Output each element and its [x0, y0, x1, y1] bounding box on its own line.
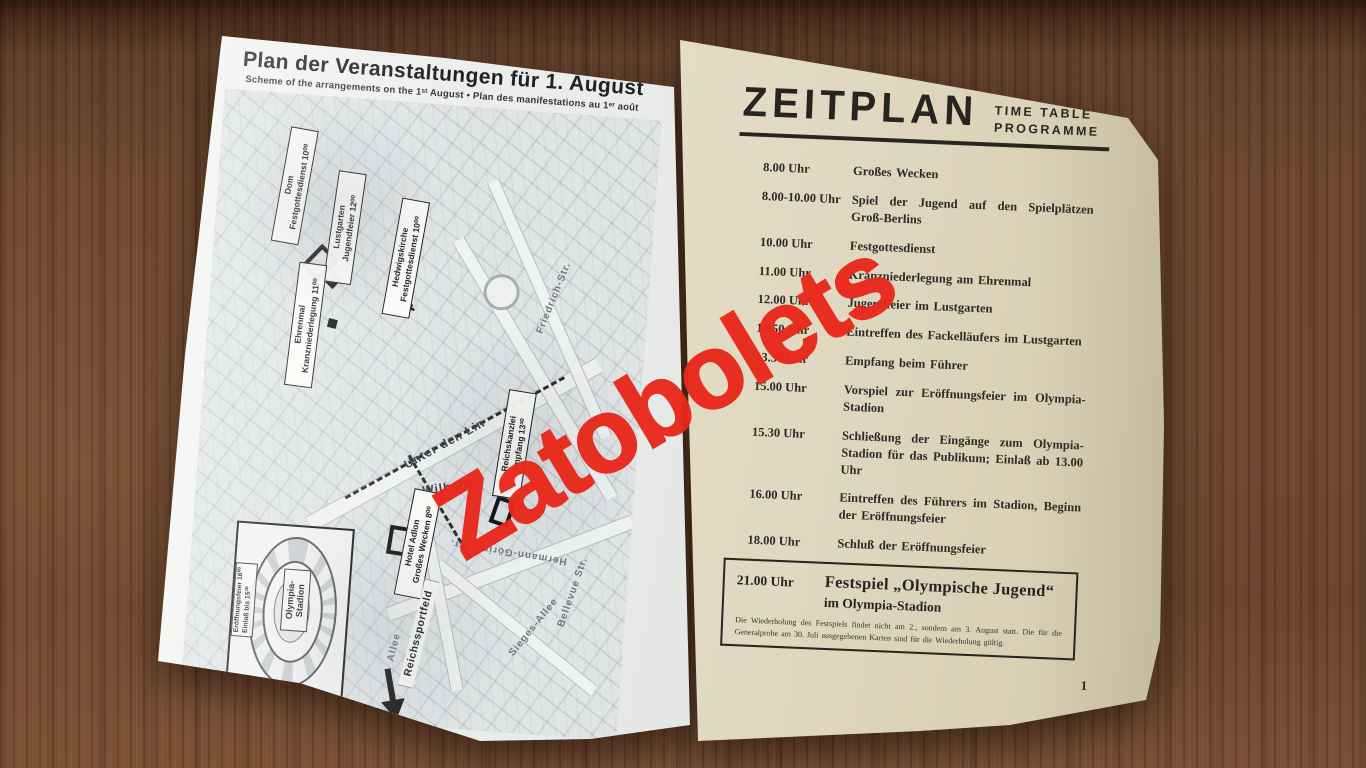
stadium-note-line2: Einlaß bis 15³⁰ [242, 567, 256, 633]
street-band [452, 236, 618, 501]
page-number: 1 [1080, 679, 1087, 692]
schedule-time: 12.00 Uhr [757, 291, 848, 312]
schedule-list: 8.00 Uhr Großes Wecken 8.00-10.00 Uhr Sp… [747, 159, 1096, 575]
street-name-label: Allee [386, 632, 403, 662]
street-name-label: Wilhelm [422, 477, 476, 496]
roundabout-mark [482, 273, 521, 312]
event-label-dom: Dom Festgottesdienst 10⁰⁰ [271, 126, 319, 245]
street-band [434, 559, 597, 695]
building-mark-adlon [386, 525, 413, 557]
event-label-place: Ehrenmal [288, 268, 313, 381]
stadium-name-label: Olympia-Stadion [280, 568, 311, 632]
street-name-label: Friedrich-Str. [535, 261, 573, 335]
schedule-time: 8.00-10.00 Uhr [761, 188, 852, 225]
street-name-label: Unter den Lin [402, 416, 487, 470]
schedule-text: Spiel der Jugend auf den Spielplätzen Gr… [851, 192, 1094, 236]
featured-event-note: Die Wiederholung des Festspiels findet n… [734, 614, 1062, 651]
stadium-mid-ring [259, 559, 326, 665]
street-band [413, 492, 463, 691]
stadium-outer-ring [243, 534, 342, 690]
stadium-note-line1: Eröffnungsfeier 16⁰⁰ [233, 567, 247, 633]
open-programme-booklet: Plan der Veranstaltungen für 1. August S… [150, 25, 1170, 750]
event-label-reichskanzlei: Reichskanzlei Empfang 13³⁰ [492, 389, 537, 500]
event-label-place: Dom [275, 133, 304, 237]
timetable-subtitle: TIME TABLE PROGRAMME [994, 103, 1101, 141]
building-mark-reichskanzlei [488, 495, 516, 528]
event-label-event: Festgottesdienst 10⁰⁰ [287, 143, 312, 230]
berlin-city-map: ✚ Unter den Lin Wilhelm Friedrich-Str. S… [179, 88, 661, 740]
route-arrow-icon [375, 666, 409, 722]
schedule-time: 15.00 Uhr [753, 378, 844, 415]
timetable-subtitle-fr: PROGRAMME [994, 119, 1100, 140]
event-label-place: Lustgarten [327, 177, 352, 278]
street-band [306, 358, 603, 532]
stadium-note: Eröffnungsfeier 16⁰⁰ Einlaß bis 15³⁰ [231, 563, 258, 638]
schedule-text: Großes Wecken [853, 163, 1095, 190]
schedule-row: 10.00 Uhr Festgottesdienst [760, 234, 1092, 265]
schedule-row: 11.00 Uhr Kranzniederlegung am Ehrenmal [758, 262, 1090, 293]
schedule-text: Schluß der Eröffnungsfeier [837, 536, 1079, 563]
schedule-text: Empfang beim Führer [845, 353, 1087, 380]
stadium-field [271, 578, 312, 644]
street-name-label: Bellevue Str. [557, 556, 590, 628]
event-label-event: Großes Wecken 8⁰⁰ [410, 506, 435, 584]
timetable-title: ZEITPLAN [742, 81, 979, 132]
schedule-text: Schließung der Eingänge zum Olympia-Stad… [840, 427, 1084, 488]
building-mark-dom [301, 244, 339, 282]
left-page-content: Plan der Veranstaltungen für 1. August S… [171, 32, 673, 768]
street-name-label: Sieges-Allee [507, 597, 560, 659]
right-page-content: ZEITPLAN TIME TABLE PROGRAMME 8.00 Uhr G… [666, 50, 1165, 764]
street-band [386, 515, 634, 621]
schedule-text: Kranzniederlegung am Ehrenmal [848, 266, 1090, 293]
schedule-time: 15.30 Uhr [750, 423, 842, 477]
schedule-text: Eintreffen des Führers im Stadion, Begin… [838, 490, 1081, 534]
schedule-time: 10.00 Uhr [760, 234, 851, 255]
featured-event-row: 21.00 Uhr Festspiel „Olympische Jugend“ … [736, 569, 1064, 621]
schedule-time: 18.00 Uhr [747, 532, 838, 553]
schedule-row: 15.30 Uhr Schließung der Eingänge zum Ol… [750, 423, 1084, 487]
schedule-row: 15.00 Uhr Vorspiel zur Eröffnungsfeier i… [753, 378, 1086, 426]
schedule-time: 13.30 Uhr [755, 349, 846, 370]
stadium-inset: Olympia-Stadion Eröffnungsfeier 16⁰⁰ Ein… [225, 521, 355, 701]
schedule-row: 8.00-10.00 Uhr Spiel der Jugend auf den … [761, 188, 1094, 236]
street-band [487, 179, 612, 440]
schedule-row: 12.50 Uhr Eintreffen des Fackelläufers i… [756, 320, 1088, 351]
photo-scene: Plan der Veranstaltungen für 1. August S… [0, 0, 1366, 768]
building-mark-ehrenmal [327, 318, 338, 329]
schedule-time: 8.00 Uhr [763, 159, 854, 180]
schedule-text: Jugendfeier im Lustgarten [847, 295, 1089, 322]
featured-event-main: Festspiel „Olympische Jugend“ im Olympia… [824, 573, 1055, 621]
schedule-time: 12.50 Uhr [756, 320, 847, 341]
building-mark [324, 271, 342, 289]
street-name-label: Hermann-Göring-Str. [450, 537, 568, 566]
schedule-row: 8.00 Uhr Großes Wecken [763, 159, 1095, 190]
route-dash-line [345, 376, 566, 499]
featured-event-time: 21.00 Uhr [736, 569, 826, 611]
event-label-ehrenmal: Ehrenmal Kranzniederlegung 11⁰⁰ [284, 262, 327, 389]
event-label-event: Empfang 13³⁰ [510, 418, 529, 473]
schedule-row: 13.30 Uhr Empfang beim Führer [755, 349, 1087, 380]
route-dash-line [408, 455, 472, 560]
event-label-event: Festgottesdienst 10⁰⁰ [398, 216, 423, 303]
schedule-time: 16.00 Uhr [748, 486, 839, 523]
schedule-row: 16.00 Uhr Eintreffen des Führers im Stad… [748, 486, 1081, 534]
event-label-event: Kranzniederlegung 11⁰⁰ [300, 278, 322, 374]
schedule-row: 18.00 Uhr Schluß der Eröffnungsfeier [747, 532, 1079, 563]
event-label-place: Hedwigskirche [386, 204, 416, 310]
event-label-hotel-adlon: Hotel Adlon Großes Wecken 8⁰⁰ [394, 488, 443, 599]
event-label-event: Jugendfeier 12⁰⁰ [340, 195, 359, 263]
schedule-row: 12.00 Uhr Jugendfeier im Lustgarten [757, 291, 1089, 322]
schedule-time: 11.00 Uhr [758, 262, 849, 283]
featured-event-box: 21.00 Uhr Festspiel „Olympische Jugend“ … [720, 558, 1078, 661]
schedule-text: Vorspiel zur Eröffnungsfeier im Olympia-… [843, 382, 1086, 426]
schedule-text: Festgottesdienst [850, 237, 1092, 264]
church-cross-icon: ✚ [403, 301, 417, 316]
schedule-text: Eintreffen des Fackelläufers im Lustgart… [846, 324, 1088, 351]
event-label-place: Hotel Adlon [398, 495, 427, 591]
route-direction-label: Reichssportfeld [398, 578, 439, 689]
event-label-lustgarten: Lustgarten Jugendfeier 12⁰⁰ [323, 170, 367, 285]
event-label-hedwigskirche: Hedwigskirche Festgottesdienst 10⁰⁰ [382, 198, 431, 319]
event-label-place: Reichskanzlei [496, 396, 522, 493]
